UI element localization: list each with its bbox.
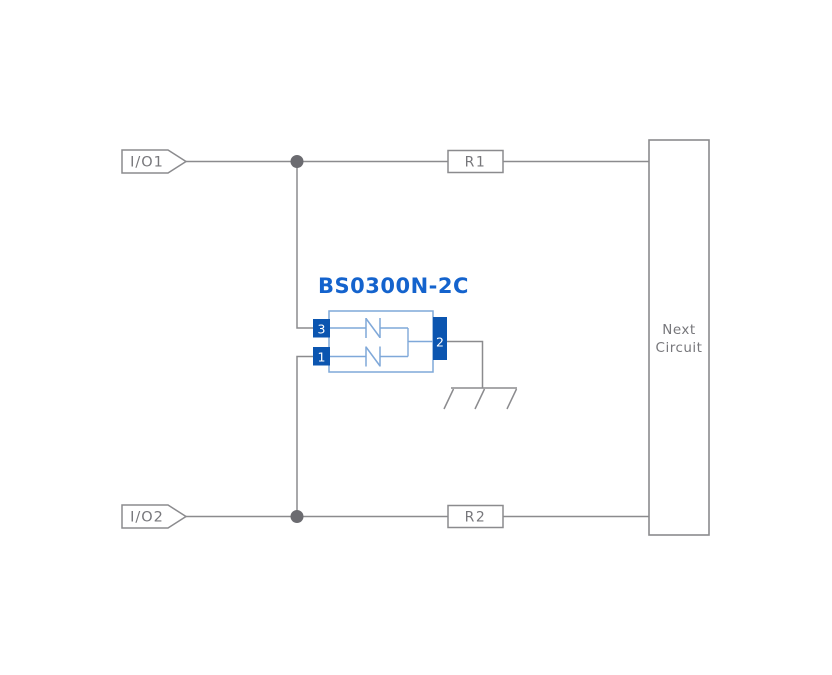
component-title: BS0300N-2C xyxy=(318,274,469,298)
ground-symbol xyxy=(444,388,517,409)
pin3-number: 3 xyxy=(318,321,326,336)
circuit-diagram: I/O1 I/O2 R1 R2 Next Circuit BS0300N-2C xyxy=(0,0,832,675)
junction-dot-bottom xyxy=(291,510,304,523)
schematic-canvas: I/O1 I/O2 R1 R2 Next Circuit BS0300N-2C xyxy=(0,0,832,675)
resistor-r1-label: R1 xyxy=(465,155,487,171)
component-pin-3: 3 xyxy=(313,319,330,338)
io1-label: I/O1 xyxy=(130,155,164,171)
pin2-number: 2 xyxy=(436,334,444,349)
next-circuit-label-line1: Next xyxy=(662,322,695,338)
component-pin-2: 2 xyxy=(433,317,447,360)
junction-dot-top xyxy=(291,155,304,168)
next-circuit-block: Next Circuit xyxy=(649,140,709,535)
component-pin-1: 1 xyxy=(313,347,330,366)
pin1-number: 1 xyxy=(318,349,326,364)
ground-hatch-1 xyxy=(444,389,454,409)
io1-port: I/O1 xyxy=(122,150,186,173)
wire-junction-top-to-pin3 xyxy=(297,162,313,329)
ground-hatch-3 xyxy=(507,389,517,409)
resistor-r2-label: R2 xyxy=(465,510,487,526)
wire-pin2-to-ground xyxy=(447,342,483,389)
resistor-r1: R1 xyxy=(448,151,503,173)
resistor-r2: R2 xyxy=(448,506,503,528)
io2-label: I/O2 xyxy=(130,510,164,526)
next-circuit-label-line2: Circuit xyxy=(656,340,703,356)
ground-hatch-2 xyxy=(475,389,485,409)
io2-port: I/O2 xyxy=(122,505,186,528)
tvs-component: BS0300N-2C 3 1 xyxy=(313,274,469,372)
wire-junction-bottom-to-pin1 xyxy=(297,357,313,517)
